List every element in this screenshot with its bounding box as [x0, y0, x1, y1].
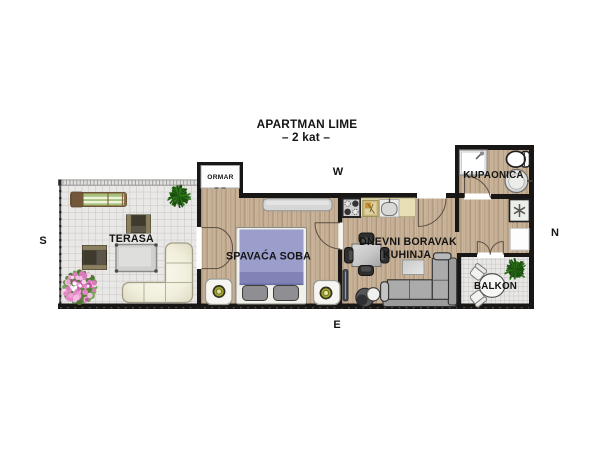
svg-text:ORMAR: ORMAR [207, 174, 233, 181]
svg-text:KUPAONICA: KUPAONICA [463, 170, 523, 181]
svg-text:SPAVAĆA SOBA: SPAVAĆA SOBA [226, 250, 311, 263]
svg-text:APARTMAN LIME: APARTMAN LIME [257, 117, 358, 131]
svg-text:BALKON: BALKON [474, 281, 517, 292]
svg-text:– 2 kat –: – 2 kat – [282, 130, 331, 144]
svg-text:DNEVNI BORAVAK: DNEVNI BORAVAK [359, 236, 457, 248]
svg-text:E: E [333, 319, 340, 331]
svg-text:W: W [333, 166, 344, 178]
svg-text:KUHINJA: KUHINJA [383, 249, 432, 261]
svg-text:N: N [551, 227, 559, 239]
svg-text:TERASA: TERASA [109, 233, 154, 245]
svg-text:S: S [39, 235, 46, 247]
